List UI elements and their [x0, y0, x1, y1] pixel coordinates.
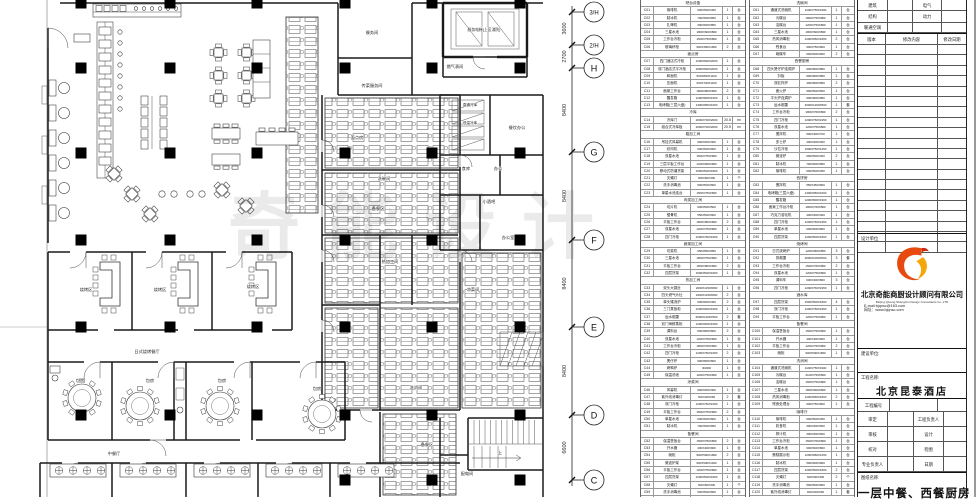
- discipline-label: 电气: [913, 0, 942, 10]
- equip-dim: 1300X950X1600: [691, 102, 723, 108]
- equip-section-row: 粗加工间: [641, 131, 745, 138]
- equip-qty: 1: [832, 401, 842, 407]
- equip-unit: 台: [842, 131, 854, 137]
- equip-dim: 1500X750X800: [691, 438, 723, 444]
- equip-row: C88四门冷柜1200X760X19501台: [750, 219, 854, 226]
- equip-code: C25: [641, 212, 654, 218]
- equip-qty: 1: [832, 328, 842, 334]
- equip-dim: 1500X500X1800: [800, 299, 832, 305]
- equip-dim: 600X60X300: [800, 474, 832, 480]
- revision-cell: [858, 55, 886, 64]
- equip-unit: 台: [842, 44, 854, 50]
- equip-row: C18双星水池1500X750X8001台: [641, 153, 745, 160]
- revision-cell: [858, 97, 886, 106]
- equip-row: C89单星水池600X600X8001台: [750, 226, 854, 233]
- equip-dim: 1500X760X800: [800, 263, 832, 269]
- equip-section-row: 冷库: [641, 109, 745, 116]
- equip-row: C07四门酒店式冷柜1200X900X20001台: [641, 58, 745, 65]
- equip-code: C38: [641, 321, 654, 327]
- equip-dim: 600X500X450: [691, 7, 723, 13]
- title-block: 建筑 电气 结构 动力 暖通空调 版本 修改内容 修改日期 设计单位 北京奇能商…: [857, 0, 967, 497]
- equip-row: C82咖啡机600X500X4501台: [750, 168, 854, 175]
- equip-row: C52保温售饭台1500X750X8002台: [641, 438, 745, 445]
- equip-section-label: 凉菜间: [641, 379, 745, 385]
- revision-empty-row: [858, 55, 966, 65]
- equip-name: 吊挂式风幕机: [654, 139, 691, 145]
- equip-qty: 1: [832, 102, 842, 108]
- equip-unit: 台: [842, 416, 854, 422]
- equip-qty: 4: [832, 299, 842, 305]
- sign-value: [888, 427, 914, 441]
- svg-text:洗碗间: 洗碗间: [378, 175, 391, 182]
- equip-qty: 1: [832, 438, 842, 444]
- revision-cell: [938, 159, 966, 168]
- equip-unit: m²: [733, 117, 745, 123]
- equip-name: 洗手消毒池: [654, 489, 691, 495]
- equip-dim: 400X400X900: [691, 445, 723, 451]
- equip-code: C55: [641, 460, 654, 466]
- revision-empty-row: [858, 128, 966, 138]
- equip-section-row: 西饼房: [750, 175, 854, 182]
- svg-text:餐务间: 餐务间: [366, 29, 379, 36]
- equip-qty: 1: [832, 452, 842, 458]
- equip-section-row: 酒水库: [750, 292, 854, 299]
- equip-dim: 1200X760X1950: [800, 219, 832, 225]
- equip-unit: 台: [733, 146, 745, 152]
- revision-cell: [938, 45, 966, 54]
- equip-row: C119洗手消毒池500X500X8001台: [750, 482, 854, 489]
- equip-qty: 1: [832, 146, 842, 152]
- discipline-value: [942, 11, 966, 22]
- design-unit-section: 设计单位 北京奇能商厨设计顾问有限公司 Beijing Qineng Shang…: [858, 233, 966, 348]
- discipline-value: [942, 0, 966, 10]
- equip-section-label: 粗加工间: [641, 131, 745, 137]
- equip-section-label: 肉类加工间: [641, 197, 745, 203]
- equip-dim: 1800X600X800: [691, 29, 723, 35]
- equip-qty: 1: [832, 489, 842, 495]
- revision-empty-row: [858, 222, 966, 232]
- equip-unit: 台: [842, 336, 854, 342]
- svg-text:中餐厅: 中餐厅: [108, 450, 121, 457]
- equip-name: 制冰机: [763, 161, 800, 167]
- equip-row: C63洁碟台1200X750X8001台: [750, 22, 854, 29]
- equip-qty: 1: [723, 190, 733, 196]
- equip-code: C99: [750, 314, 763, 320]
- equip-row: C30三星水池1800X750X8001台: [641, 255, 745, 262]
- equip-name: 残食台: [763, 44, 800, 50]
- equip-dim: 900X500X500: [800, 88, 832, 94]
- private-room-tables: [50, 366, 341, 434]
- equip-row: C94双星水池1200X750X8001台: [750, 270, 854, 277]
- equip-qty: 1: [832, 387, 842, 393]
- equip-code: C56: [641, 467, 654, 473]
- grid-bubble-label: E: [591, 323, 597, 333]
- sign-label: 审定: [858, 412, 888, 426]
- equip-name: 四头煲仔炉连焗炉: [763, 66, 800, 72]
- equip-row: C05工作台冷柜1500X750X8001台: [641, 36, 745, 43]
- equip-row: C103碗柜900X500X18001台: [750, 350, 854, 357]
- revision-cell: [938, 128, 966, 137]
- equip-unit: 台: [733, 36, 745, 42]
- equip-dim: 1200X750X800: [800, 22, 832, 28]
- equip-code: C76: [750, 124, 763, 130]
- equip-row: C64三星水池1800X600X8001台: [750, 29, 854, 36]
- equip-row: C49平板工作台1500X750X8002台: [641, 409, 745, 416]
- equip-unit: 台: [733, 102, 745, 108]
- equip-code: C53: [641, 445, 654, 451]
- equip-name: 四门冷柜: [654, 234, 691, 240]
- equip-code: C101: [750, 336, 763, 342]
- revision-cell: [858, 87, 886, 96]
- svg-text:办公: 办公: [494, 165, 503, 172]
- equip-unit: 台: [842, 168, 854, 174]
- equip-code: C111: [750, 423, 763, 429]
- revision-cell: [886, 180, 938, 189]
- equip-dim: 600X600X800: [800, 226, 832, 232]
- svg-text:备餐区: 备餐区: [421, 441, 434, 448]
- svg-text:配电间: 配电间: [461, 470, 474, 477]
- grid-bubble-label: C: [591, 476, 598, 486]
- equip-dim: 600X60X300: [691, 482, 723, 488]
- equip-section-label: 西餐厨房: [750, 58, 854, 64]
- equip-row: C08双门酒店式平冷柜1800X900X20001台: [641, 66, 745, 73]
- equip-row: C21灭蝇灯600X60X3001个: [641, 175, 745, 182]
- equip-qty: 1: [723, 482, 733, 488]
- equip-dim: 1200X760X1950: [691, 350, 723, 356]
- equip-section-row: 洗消间: [750, 358, 854, 365]
- equip-dim: 600X500X500: [691, 204, 723, 210]
- equip-unit: 台: [842, 117, 854, 123]
- equip-code: C80: [750, 153, 763, 159]
- equip-unit: 台: [733, 489, 745, 495]
- equip-qty: 2: [723, 314, 733, 320]
- equip-row: C97四层货架1500X500X18004台: [750, 299, 854, 306]
- equip-dim: 1500X800X800: [691, 263, 723, 269]
- equip-unit: 台: [842, 365, 854, 371]
- equip-row: C54碗柜900X500X18002台: [641, 452, 745, 459]
- equip-name: 平板工作台: [763, 343, 800, 349]
- grid-bubble-label: D: [591, 411, 598, 421]
- equip-dim: 900X500X1400: [691, 460, 723, 466]
- project-no-value: [890, 399, 938, 411]
- equip-unit: 台: [733, 80, 745, 86]
- equip-name: 双门酒店式平冷柜: [654, 66, 691, 72]
- equip-row: C95调料车600X400X8003台: [750, 277, 854, 284]
- revision-cell: [938, 139, 966, 148]
- equip-qty: 1: [832, 22, 842, 28]
- equip-unit: 台: [733, 190, 745, 196]
- equip-qty: 1: [832, 197, 842, 203]
- revision-cell: [938, 211, 966, 220]
- revision-empty-row: [858, 76, 966, 86]
- equip-dim: 500X500X800: [691, 182, 723, 188]
- equip-row: C31平板工作台1500X800X8002台: [641, 263, 745, 270]
- equip-unit: 台: [733, 88, 745, 94]
- equip-unit: 台: [733, 299, 745, 305]
- revision-empty-row: [858, 170, 966, 180]
- equip-unit: 台: [733, 409, 745, 415]
- equip-row: C47紫外线消毒灯600X200X602套: [641, 394, 745, 401]
- dimension-text: 8400: [562, 277, 568, 289]
- equip-code: C59: [641, 489, 654, 495]
- equip-code: C67: [750, 51, 763, 57]
- equip-unit: 台: [733, 212, 745, 218]
- equip-unit: 台: [733, 58, 745, 64]
- equip-code: C12: [641, 95, 654, 101]
- equip-dim: 900X800X850: [800, 66, 832, 72]
- revision-header-content: 修改内容: [886, 34, 938, 44]
- equip-dim: 1200X760X1950: [691, 234, 723, 240]
- equip-code: C117: [750, 467, 763, 473]
- sign-value: [944, 457, 966, 471]
- equip-row: C86面案工作台冷柜1800X760X8001台: [750, 204, 854, 211]
- equip-section-row: 西餐厨房: [750, 58, 854, 65]
- equip-unit: 台: [733, 182, 745, 188]
- equip-qty: 2: [832, 263, 842, 269]
- equip-dim: 700X600X850: [691, 15, 723, 21]
- equip-qty: 1: [832, 460, 842, 466]
- equip-qty: 1: [832, 365, 842, 371]
- equip-row: C33双头大锅灶2000X1150X8001台: [641, 285, 745, 292]
- svg-text:餐饮办公: 餐饮办公: [509, 124, 527, 131]
- equip-row: C118灭蝇灯600X60X3002个: [750, 474, 854, 481]
- equip-code: C54: [641, 452, 654, 458]
- equip-section-label: 酒水库: [750, 292, 854, 298]
- grid-bubble-label: F: [591, 236, 597, 246]
- revision-cell: [858, 180, 886, 189]
- equip-dim: 400X300X300: [800, 212, 832, 218]
- equip-unit: 台: [842, 387, 854, 393]
- revision-cell: [938, 201, 966, 210]
- equip-name: 双星水池: [654, 336, 691, 342]
- sign-label: 审核: [858, 427, 888, 441]
- equip-code: C115: [750, 452, 763, 458]
- equip-name: 四门冷柜: [654, 350, 691, 356]
- equip-code: C47: [641, 394, 654, 400]
- equip-dim: 900X800X850: [800, 95, 832, 101]
- equip-dim: 2000X700X2000: [691, 117, 723, 123]
- equip-row: C110咖啡机600X500X4501台: [750, 416, 854, 423]
- equip-code: C87: [750, 212, 763, 218]
- equip-name: 洗手消毒池: [763, 482, 800, 488]
- equip-code: C16: [641, 139, 654, 145]
- equip-dim: 1500X750X1250: [800, 146, 832, 152]
- equip-row: C29切菜机650X550X9501台: [641, 248, 745, 255]
- equip-code: C52: [641, 438, 654, 444]
- equip-dim: 300X300X500: [800, 423, 832, 429]
- equip-row: C06玻璃杯柜900X450X18002台: [641, 44, 745, 51]
- revision-cell: [858, 107, 886, 116]
- equip-unit: 台: [842, 7, 854, 13]
- equip-section-label: 西饼房: [750, 175, 854, 181]
- revision-cell: [858, 190, 886, 199]
- sign-label: 设计: [914, 427, 944, 441]
- equip-unit: 台: [842, 314, 854, 320]
- equip-dim: 550X450X800: [800, 182, 832, 188]
- sheet-frame: [0, 0, 47, 497]
- equip-qty: 1: [723, 321, 733, 327]
- equip-dim: 1100X750X1900: [800, 7, 832, 13]
- equip-name: 移动式防潮货架: [654, 168, 691, 174]
- revision-cell: [858, 45, 886, 54]
- equip-qty: 2: [832, 109, 842, 115]
- equip-unit: m²: [733, 124, 745, 130]
- equip-row: C120紫外线消毒灯600X200X601套: [750, 489, 854, 496]
- revision-cell: [886, 87, 938, 96]
- equip-unit: 台: [733, 29, 745, 35]
- equip-row: C50单星水池600X600X8001台: [641, 416, 745, 423]
- equip-name: 沙拉冷柜: [763, 146, 800, 152]
- equip-row: C91日式烧烤炉1200X800X8503台: [750, 248, 854, 255]
- equip-name: 咖啡机: [763, 416, 800, 422]
- equip-name: 平板工作台: [654, 219, 691, 225]
- equip-unit: 台: [733, 263, 745, 269]
- equip-dim: 1200X760X1950: [691, 401, 723, 407]
- equip-name: 三星水池: [654, 255, 691, 261]
- equip-qty: 2: [723, 350, 733, 356]
- equip-unit: 台: [842, 248, 854, 254]
- equip-unit: 台: [733, 15, 745, 21]
- revision-empty-row: [858, 66, 966, 76]
- sheet-right-border: [974, 0, 976, 497]
- equip-row: C58灭蝇灯600X60X3001个: [641, 482, 745, 489]
- revision-cell: [886, 55, 938, 64]
- equip-qty: 1: [832, 182, 842, 188]
- equip-dim: 1800X900X2000: [691, 66, 723, 72]
- revision-cell: [858, 149, 886, 158]
- svg-text:低温冷库: 低温冷库: [463, 120, 478, 125]
- sign-value: [944, 427, 966, 441]
- equip-code: C57: [641, 474, 654, 480]
- equip-code: C32: [641, 270, 654, 276]
- equip-code: C21: [641, 175, 654, 181]
- equip-unit: 个: [733, 482, 745, 488]
- equip-unit: 台: [842, 182, 854, 188]
- equip-name: 工作台冷柜: [654, 36, 691, 42]
- equip-qty: 2: [723, 409, 733, 415]
- equip-unit: 台: [733, 416, 745, 422]
- revision-cell: [858, 66, 886, 75]
- equip-unit: 台: [842, 299, 854, 305]
- equip-code: C24: [641, 204, 654, 210]
- equip-unit: 台: [842, 482, 854, 488]
- discipline-label: 结构: [858, 11, 888, 22]
- equip-name: 风幕机: [654, 387, 691, 393]
- equip-code: C62: [750, 15, 763, 21]
- equip-unit: 台: [733, 226, 745, 232]
- equip-dim: 1100X750X1900: [800, 365, 832, 371]
- equip-name: 扒板: [763, 73, 800, 79]
- equip-unit: 台: [733, 387, 745, 393]
- equip-name: 四门冷柜: [763, 285, 800, 291]
- equip-dim: 650X550X950: [691, 248, 723, 254]
- equip-code: C74: [750, 109, 763, 115]
- sign-label: 专业负责人: [858, 457, 888, 471]
- equip-name: 四层货架: [763, 299, 800, 305]
- equip-unit: 套: [842, 102, 854, 108]
- equip-name: 锯骨机: [654, 212, 691, 218]
- equip-unit: 台: [842, 109, 854, 115]
- equip-name: 四门冷柜: [763, 219, 800, 225]
- equip-unit: 台: [842, 263, 854, 269]
- svg-text:包房: 包房: [218, 377, 226, 384]
- sign-value: [888, 412, 914, 426]
- equip-code: C120: [750, 489, 763, 495]
- svg-text:小酒吧: 小酒吧: [483, 198, 496, 205]
- equip-row: C117四层货架1200X500X18002台: [750, 467, 854, 474]
- equip-dim: 1500X500X1800: [691, 270, 723, 276]
- equip-qty: 1: [723, 204, 733, 210]
- svg-text:包房: 包房: [76, 377, 84, 384]
- equip-row: C57四层货架1200X500X18001台: [641, 474, 745, 481]
- equip-row: C13电烤箱(三层六盘)1300X950X16001台: [641, 102, 745, 109]
- equip-qty: 1: [832, 29, 842, 35]
- svg-text:烧烤区: 烧烤区: [80, 286, 93, 293]
- equip-qty: 1: [832, 44, 842, 50]
- equip-qty: 2: [723, 44, 733, 50]
- equip-section-label: 面点房: [641, 51, 745, 57]
- svg-text:食库: 食库: [462, 165, 470, 172]
- equip-dim: 600X500X400: [800, 153, 832, 159]
- equip-dim: 900X500X1800: [691, 452, 723, 458]
- equip-qty: 1: [723, 234, 733, 240]
- equip-code: C29: [641, 248, 654, 254]
- equip-row: C115蛋糕展示柜1200X680X12501台: [750, 452, 854, 459]
- revision-rows: [858, 45, 966, 233]
- equip-qty: 1: [723, 15, 733, 21]
- equip-qty: 3: [832, 248, 842, 254]
- equip-row: C76双星水池1200X750X8001台: [750, 124, 854, 131]
- equip-dim: 600X500X450: [800, 416, 832, 422]
- equip-row: C23单星水池连台1500X750X8001台: [641, 190, 745, 197]
- equip-qty: 1: [723, 460, 733, 466]
- equip-qty: 1: [723, 336, 733, 342]
- equip-dim: 1200X750X800: [691, 372, 723, 378]
- discipline-value: [888, 0, 913, 10]
- equip-name: 四层货架: [763, 234, 800, 240]
- equip-row: C38双门海鲜蒸柜1200X900X19501台: [641, 321, 745, 328]
- equip-name: 咖啡机: [654, 7, 691, 13]
- revision-cell: [938, 222, 966, 231]
- equip-code: C88: [750, 219, 763, 225]
- equip-qty: 1: [832, 124, 842, 130]
- equip-dim: 1200X650X1800: [800, 36, 832, 42]
- equip-code: C18: [641, 153, 654, 159]
- discipline-label: [913, 23, 942, 32]
- equip-dim: 900X800X850: [800, 73, 832, 79]
- equip-section-row: 肉类加工间: [641, 197, 745, 204]
- revision-empty-row: [858, 118, 966, 128]
- grid-bubble-label: G: [590, 148, 597, 158]
- equip-code: C10: [641, 80, 654, 86]
- equip-name: 工作台冷柜: [763, 263, 800, 269]
- equip-unit: 台: [842, 15, 854, 21]
- equip-name: 调料台: [654, 328, 691, 334]
- equip-name: 咖啡机: [763, 168, 800, 174]
- equip-unit: 台: [733, 168, 745, 174]
- svg-text:服务电梯(上区消防): 服务电梯(上区消防): [468, 27, 502, 32]
- equip-row: C100保温售饭台1500X750X8001台: [750, 328, 854, 335]
- equip-unit: 台: [733, 328, 745, 334]
- equip-code: C98: [750, 306, 763, 312]
- equip-row: C17绞肉机600X600X9001台: [641, 146, 745, 153]
- equip-unit: 台: [842, 153, 854, 159]
- equip-qty: 2: [723, 292, 733, 298]
- equip-code: C79: [750, 146, 763, 152]
- revision-empty-row: [858, 149, 966, 159]
- equip-code: C95: [750, 277, 763, 283]
- equip-qty: 2: [723, 219, 733, 225]
